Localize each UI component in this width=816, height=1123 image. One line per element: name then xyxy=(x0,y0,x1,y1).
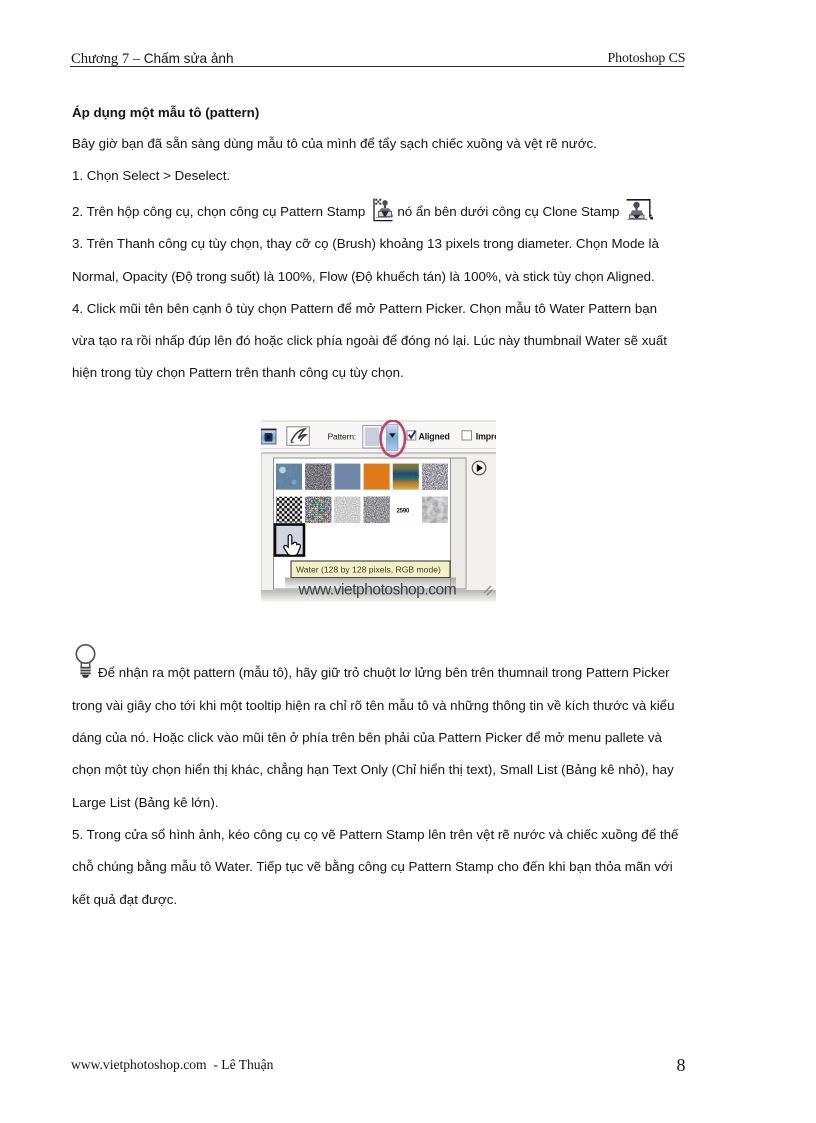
svg-text:www.vietphotoshop.com: www.vietphotoshop.com xyxy=(298,582,457,599)
svg-text:Water (128 by 128 pixels, RGB: Water (128 by 128 pixels, RGB mode) xyxy=(296,565,441,575)
svg-text:Pattern:: Pattern: xyxy=(328,431,357,441)
svg-text:Aligned: Aligned xyxy=(419,431,450,441)
svg-text:2590: 2590 xyxy=(397,508,410,515)
svg-text:Impre: Impre xyxy=(476,431,496,441)
